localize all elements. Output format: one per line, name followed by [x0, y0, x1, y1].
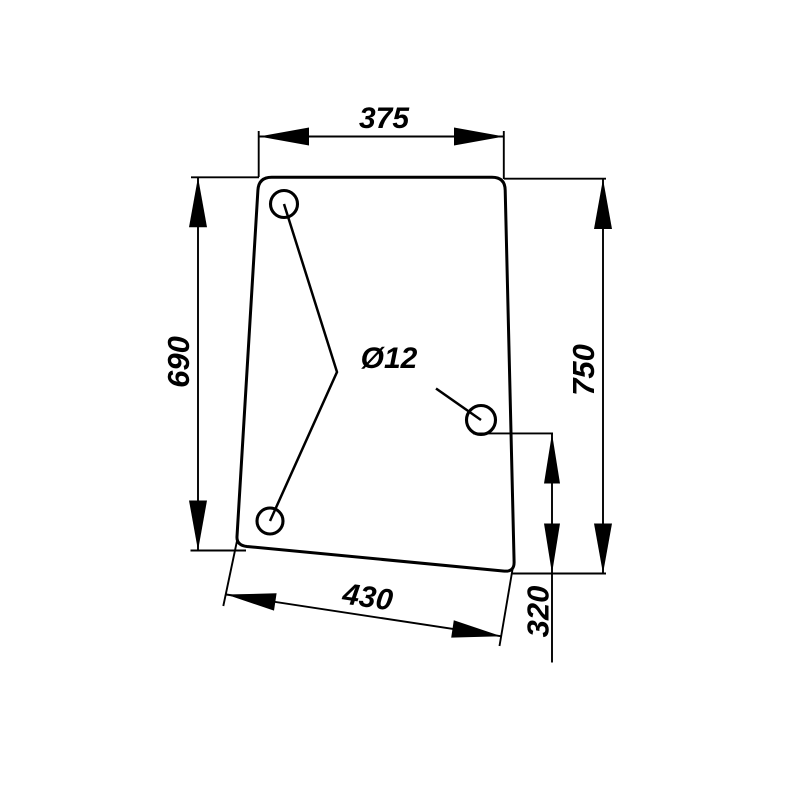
- svg-text:Ø12: Ø12: [361, 342, 418, 375]
- svg-text:750: 750: [566, 344, 601, 396]
- svg-text:375: 375: [359, 102, 410, 135]
- svg-text:320: 320: [521, 586, 556, 638]
- svg-text:690: 690: [161, 336, 196, 388]
